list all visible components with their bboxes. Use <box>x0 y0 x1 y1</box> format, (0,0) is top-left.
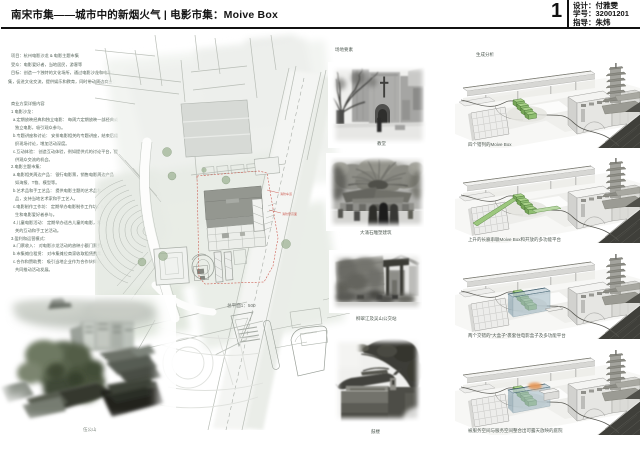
svg-text:消防登高面: 消防登高面 <box>282 211 297 216</box>
svg-text:消防车道: 消防车道 <box>280 191 292 196</box>
svg-text:总平面1：500: 总平面1：500 <box>227 302 256 309</box>
